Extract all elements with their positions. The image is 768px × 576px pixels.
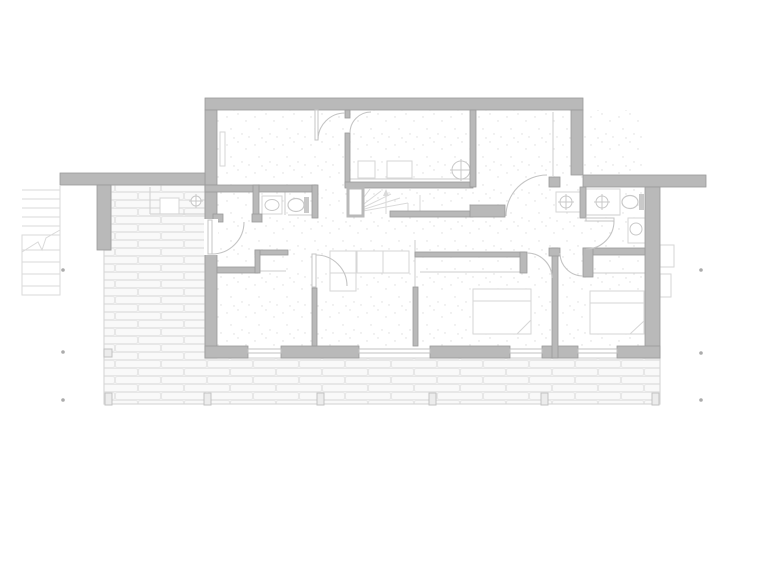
bottom-wall-e xyxy=(617,346,660,358)
partition-bed1-living xyxy=(312,288,317,346)
toilet-main-bath xyxy=(622,194,644,210)
bed2-closet-wall xyxy=(415,252,525,257)
floor-plan-canvas xyxy=(0,0,768,576)
partition-living-bed2 xyxy=(413,287,418,346)
survey-marker-1 xyxy=(61,268,65,272)
survey-marker-2 xyxy=(61,350,65,354)
hall-bath-partition-left xyxy=(253,185,259,218)
window-1 xyxy=(248,349,281,353)
utility-partition xyxy=(345,133,350,187)
hall-wall-upper-right xyxy=(470,205,505,217)
sink-main-bath xyxy=(628,218,646,243)
terrace-post-1 xyxy=(105,393,112,405)
bedroom1-door-leaf xyxy=(312,254,316,287)
entry-door-leaf xyxy=(208,220,212,254)
exterior-stair xyxy=(22,186,60,295)
bed1-closet-side xyxy=(255,250,260,273)
hall-top-wall xyxy=(205,185,317,192)
washer xyxy=(358,161,375,178)
terrace-post-5 xyxy=(541,393,548,405)
left-stub-wall xyxy=(97,185,111,250)
survey-marker-5 xyxy=(699,351,703,355)
bathroom-door-leaf xyxy=(586,218,614,221)
exterior-step-1 xyxy=(660,245,674,267)
survey-marker-4 xyxy=(699,268,703,272)
bottom-wall-d xyxy=(542,346,578,358)
upper-left-wall xyxy=(205,110,217,187)
survey-marker-6 xyxy=(699,398,703,402)
bottom-wall-b xyxy=(281,346,359,358)
bed3-closet-side xyxy=(583,248,593,277)
bed1-top-wall xyxy=(217,267,258,273)
radiator xyxy=(220,132,225,166)
floor-plan-page xyxy=(0,0,768,576)
toilet-hall-bath xyxy=(288,197,309,213)
hall-bath-partition-right xyxy=(312,185,318,218)
terrace-corner-post xyxy=(104,349,112,357)
terrace-post-6 xyxy=(652,393,659,405)
room1-door-leaf xyxy=(315,110,318,140)
dryer xyxy=(387,161,412,178)
window-4 xyxy=(578,349,617,353)
left-main-wall xyxy=(205,185,217,358)
utility-partition-stub xyxy=(345,110,350,118)
bed-right xyxy=(590,291,644,334)
top-wall xyxy=(205,98,583,110)
stair-closet xyxy=(348,188,363,216)
terrace-post-2 xyxy=(204,393,211,405)
right-main-wall xyxy=(645,187,660,358)
right-wing-wall xyxy=(583,175,706,187)
hall-bath-cap xyxy=(252,214,262,222)
partition-bed2-bed3 xyxy=(552,248,558,358)
exterior-step-2 xyxy=(660,274,671,297)
porch-sink xyxy=(160,198,179,214)
sliding-cap xyxy=(549,177,560,187)
bed2-closet-cap xyxy=(520,252,527,273)
left-wing-wall xyxy=(60,173,205,185)
survey-marker-3 xyxy=(61,398,65,402)
bottom-wall-a xyxy=(205,346,248,358)
bathroom-left-wall xyxy=(580,187,586,218)
sink-hall-bath xyxy=(262,196,282,214)
bottom-wall-c xyxy=(430,346,510,358)
window-3 xyxy=(510,349,542,353)
bed23-cap xyxy=(549,248,560,256)
window-2 xyxy=(359,349,430,353)
terrace-post-3 xyxy=(317,393,324,405)
upper-right-wall xyxy=(571,110,583,175)
bed-middle xyxy=(473,289,531,334)
terrace-post-4 xyxy=(429,393,436,405)
upper-partition-2 xyxy=(470,110,476,187)
stair-bottom-wall xyxy=(390,211,473,217)
